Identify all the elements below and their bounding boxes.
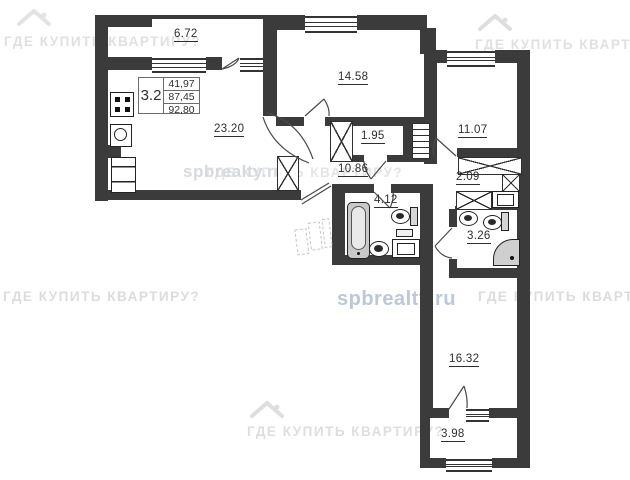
sketch-panel xyxy=(295,229,309,255)
arch-opening xyxy=(267,113,313,159)
room-label-balcony-bottom: 3.98 xyxy=(441,428,465,442)
room-label-room-top: 14.58 xyxy=(338,71,368,85)
doors-overlay xyxy=(0,0,630,480)
room-label-storage: 1.95 xyxy=(361,130,385,144)
arch-opening xyxy=(263,117,309,163)
room-label-room-bottom: 16.32 xyxy=(449,353,479,367)
door-leaf xyxy=(305,99,329,116)
door-leaf xyxy=(433,138,456,156)
room-label-bathroom: 4.12 xyxy=(374,194,398,208)
entrance-door xyxy=(301,183,331,204)
area-summary-table: 3.2 41,97 87,45 92,80 xyxy=(138,77,200,114)
door-leaf xyxy=(449,386,467,409)
room-label-hallway: 10.86 xyxy=(338,163,368,177)
room-label-room-right: 11.07 xyxy=(458,124,487,138)
rooms-count: 3.2 xyxy=(139,78,164,113)
door-leaf xyxy=(222,58,239,69)
living-area: 41,97 xyxy=(164,78,199,90)
sketch-panel xyxy=(308,222,322,250)
floor-plan: ГДЕ КУПИТЬ КВАРТИРУ? ГДЕ КУПИТЬ КВАРТИРУ… xyxy=(0,0,630,480)
room-label-corridor: 2.09 xyxy=(456,171,480,185)
sketch-panel xyxy=(322,219,332,248)
room-label-shower-room: 3.26 xyxy=(467,230,491,244)
apartment-area: 87,45 xyxy=(164,90,199,103)
room-label-balcony-top: 6.72 xyxy=(174,28,198,42)
room-label-kitchen-living: 23.20 xyxy=(214,123,244,137)
total-area: 92,80 xyxy=(164,103,199,116)
door-leaf xyxy=(435,228,452,258)
